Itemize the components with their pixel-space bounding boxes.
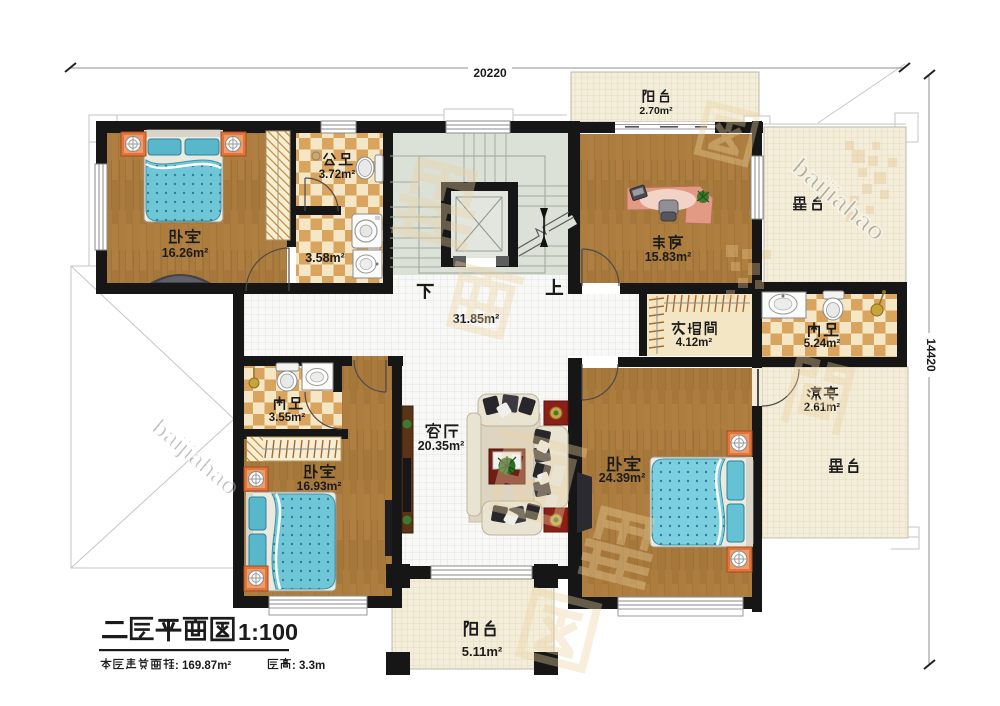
svg-text:15.83m²: 15.83m²	[645, 250, 692, 264]
svg-text:: 3.3m: : 3.3m	[292, 660, 325, 672]
svg-text:4.12m²: 4.12m²	[676, 337, 713, 349]
svg-text:3.58m²: 3.58m²	[305, 251, 345, 265]
svg-text:24.39m²: 24.39m²	[599, 471, 646, 485]
svg-text:1:100: 1:100	[238, 619, 298, 645]
svg-text:20220: 20220	[473, 66, 507, 80]
svg-text:3.72m²: 3.72m²	[319, 169, 356, 181]
svg-text:16.26m²: 16.26m²	[162, 246, 209, 260]
svg-text:14420: 14420	[924, 338, 938, 372]
svg-text:5.11m²: 5.11m²	[462, 644, 503, 659]
svg-text:: 169.87m²: : 169.87m²	[175, 660, 231, 672]
svg-text:16.93m²: 16.93m²	[297, 479, 342, 493]
svg-text:20.35m²: 20.35m²	[418, 439, 465, 453]
svg-text:3.55m²: 3.55m²	[269, 412, 306, 424]
svg-text:5.24m²: 5.24m²	[804, 338, 841, 350]
svg-text:2.70m²: 2.70m²	[639, 105, 673, 117]
